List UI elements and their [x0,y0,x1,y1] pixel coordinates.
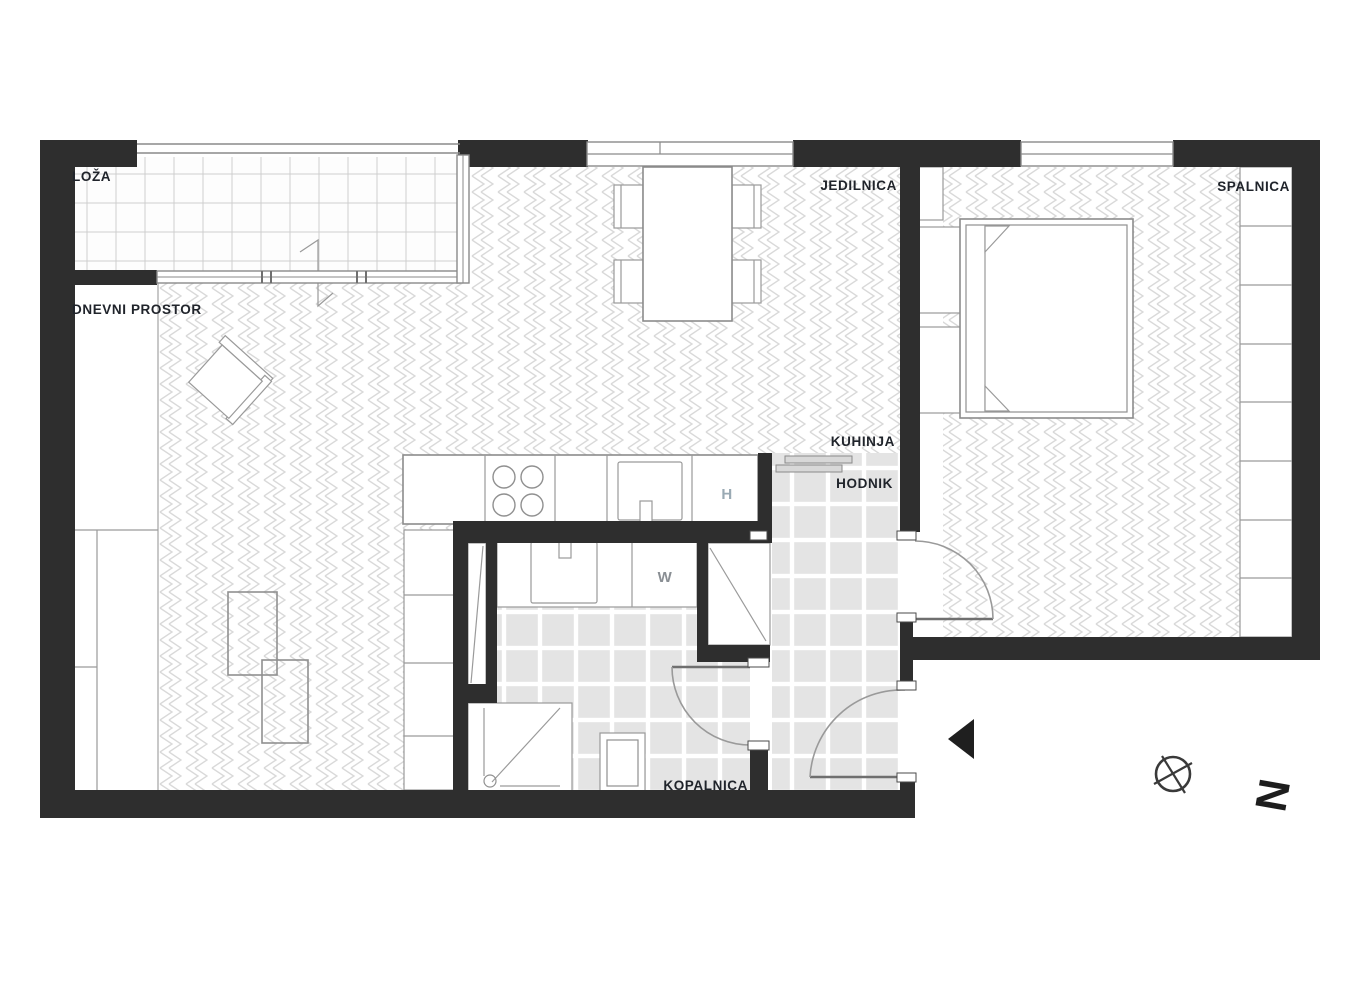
room-label-dnevni: DNEVNI PROSTOR [72,302,202,317]
dining-chair [732,260,761,303]
dining-window [587,142,793,166]
door-frame-tick [750,531,767,540]
loggia-window [157,271,460,283]
wall-segment [697,530,708,645]
door-frame-tick [748,741,769,750]
wall-segment [40,140,75,818]
kitchen-sink-icon [618,462,682,525]
bathroom-pocket-door [468,543,486,686]
room-label-kopalnica: KOPALNICA [663,778,748,793]
bedroom-window [1021,142,1173,166]
door-frame-tick [897,773,916,782]
wall-segment [468,684,497,703]
kitchen-counter [403,455,758,524]
loggia-side-glazing [457,155,469,283]
north-label: N [1245,775,1299,815]
wall-segment [453,521,772,543]
wall-segment [793,140,1021,167]
wall-segment [1292,140,1320,660]
fridge-label: H [721,486,732,503]
nightstand [916,327,962,413]
nightstand [916,227,962,313]
room-label-loza: LOŽA [72,169,111,184]
hallway-floor [772,453,900,792]
wall-segment [758,453,772,541]
dining-chair [614,185,643,228]
wall-segment [453,521,468,792]
loggia-railing [137,144,460,153]
kitchen-tall-cabinets [404,530,458,790]
wall-segment [40,270,157,285]
door-frame-tick [897,681,916,690]
wall-segment [40,790,915,818]
wall-segment [900,167,920,532]
dining-table [643,167,732,321]
loggia-floor [75,157,460,272]
room-label-hodnik: HODNIK [836,476,893,491]
compass-icon [1154,756,1192,793]
toilet-icon [600,733,645,792]
room-label-kuhinja: KUHINJA [831,434,895,449]
wardrobe [1240,167,1292,637]
shaft [708,543,770,645]
wall-segment [900,620,913,684]
wall-segment [486,543,497,686]
wall-segment [458,140,588,167]
door-frame-tick [748,658,769,667]
wall-segment [750,746,768,792]
room-label-spalnica: SPALNICA [1217,179,1290,194]
dining-chair [732,185,761,228]
shower-icon [468,703,572,792]
floor-plan: H W [0,0,1350,1000]
symbols: N [948,719,1299,815]
door-frame-tick [897,531,916,540]
washer-label: W [658,569,673,586]
dining-chair [614,260,643,303]
bed [960,219,1133,418]
room-label-jedilnica: JEDILNICA [820,178,897,193]
floor-plan-drawing: H W [0,0,1350,1000]
wall-segment [905,637,1320,660]
door-frame-tick [897,613,916,622]
entrance-arrow-icon [948,719,974,759]
